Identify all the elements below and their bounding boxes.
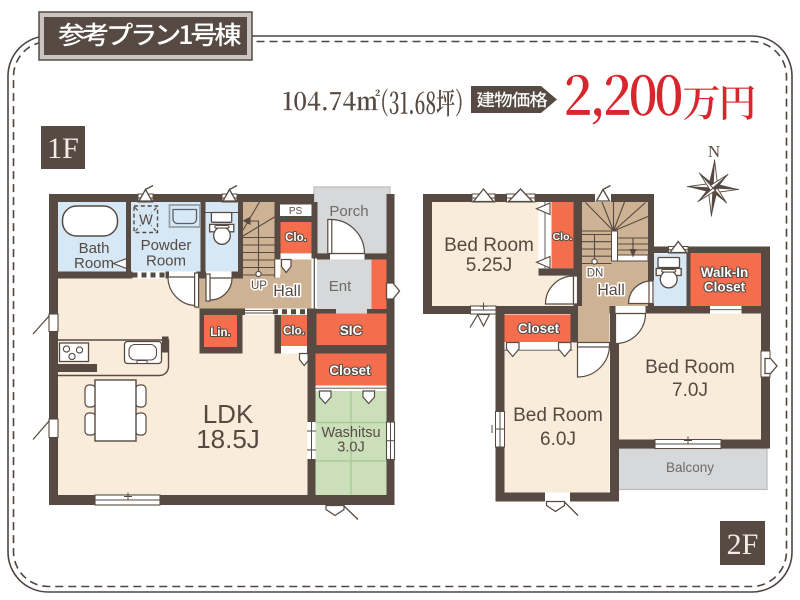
svg-text:Closet: Closet <box>329 363 371 378</box>
svg-text:Room: Room <box>74 255 114 272</box>
svg-text:3.0J: 3.0J <box>337 440 364 456</box>
svg-text:6.0J: 6.0J <box>540 429 576 450</box>
svg-text:Room: Room <box>146 253 186 270</box>
svg-text:Clo.: Clo. <box>283 326 305 338</box>
svg-text:Hall: Hall <box>597 282 625 299</box>
svg-text:Powder: Powder <box>141 237 192 254</box>
svg-text:Ent: Ent <box>329 278 352 295</box>
svg-text:Balcony: Balcony <box>666 460 714 475</box>
svg-text:7.0J: 7.0J <box>672 380 708 401</box>
svg-text:18.5J: 18.5J <box>196 424 260 454</box>
svg-text:5.25J: 5.25J <box>466 255 512 276</box>
svg-text:DN: DN <box>587 268 604 280</box>
svg-text:Bed Room: Bed Room <box>645 357 735 378</box>
svg-text:Porch: Porch <box>329 203 368 220</box>
svg-text:2F: 2F <box>727 528 759 561</box>
svg-text:1F: 1F <box>47 132 79 165</box>
svg-text:Bed Room: Bed Room <box>444 235 534 256</box>
svg-text:Closet: Closet <box>704 280 746 295</box>
svg-text:Bed Room: Bed Room <box>513 405 603 426</box>
svg-text:PS: PS <box>289 206 303 217</box>
svg-text:W: W <box>139 213 153 229</box>
svg-text:Walk-In: Walk-In <box>701 265 749 280</box>
svg-text:SIC: SIC <box>340 323 363 338</box>
svg-text:Lin.: Lin. <box>210 327 230 339</box>
svg-text:Hall: Hall <box>273 283 301 300</box>
svg-text:UP: UP <box>251 280 267 292</box>
svg-text:N: N <box>708 142 720 161</box>
svg-text:Closet: Closet <box>518 321 560 336</box>
svg-text:Clo.: Clo. <box>553 231 573 243</box>
svg-text:Clo.: Clo. <box>285 232 307 244</box>
